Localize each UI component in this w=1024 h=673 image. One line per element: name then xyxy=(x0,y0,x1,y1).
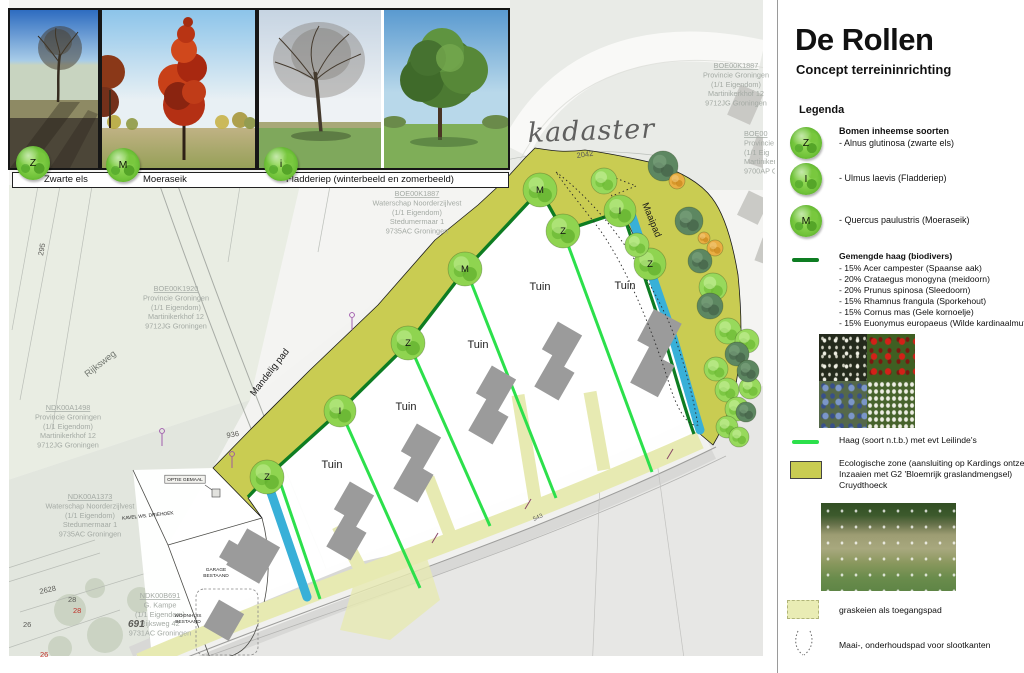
legend-tree-item-alnus: - Alnus glutinosa (zwarte els) xyxy=(839,137,954,149)
sloe-berries-photo-quadrant xyxy=(819,381,867,428)
tree-letter: I xyxy=(339,406,342,417)
parcel-owner-label: Waterschap Noorderzijlvest xyxy=(46,501,135,510)
tree-marker xyxy=(591,168,617,194)
tree-marker-m: M xyxy=(523,173,557,207)
tree-marker-i: I xyxy=(324,395,356,427)
tree-icon-letter: Z xyxy=(803,137,809,149)
tree-icon-letter: Z xyxy=(30,157,36,169)
parcel-owner-label: (1/1 Eigendom) xyxy=(392,208,442,217)
caption-moeraseik: Moeraseik xyxy=(143,174,187,185)
parcel-owner-label: NDK00B691 xyxy=(140,591,181,600)
tree-marker-z: Z xyxy=(391,326,425,360)
tree-icon-letter: M xyxy=(802,215,811,227)
tree-marker xyxy=(697,293,723,319)
parcel-owner-label: (1/1 Eigendom) xyxy=(65,511,115,520)
tree-letter: I xyxy=(619,206,622,217)
eco-zone-line: Ecologische zone (aansluiting op Karding… xyxy=(839,458,1024,469)
parcel-owner-label: BOE00K1887 xyxy=(395,189,440,198)
hedge-mix-photo xyxy=(819,334,915,428)
parcel-owner-label: Martinikerkhof xyxy=(744,157,775,166)
mixed-hedge-swatch xyxy=(792,258,819,262)
parcel-owner-label: (1/1 Eig xyxy=(744,148,769,157)
parcel-owner-label: Provincie Groningen xyxy=(703,70,769,79)
tree-icon-m-strip: M xyxy=(106,148,140,182)
parcel-number: 691 xyxy=(128,619,145,630)
parcel-owner-label: 9700AP G xyxy=(744,167,775,176)
legend-tree-icon-i: I xyxy=(790,163,822,195)
parcel-owner-label: BOE00 xyxy=(744,129,768,138)
legend-tree-item-ulmus: - Ulmus laevis (Fladderiep) xyxy=(839,172,947,184)
parcel-owner-label: Provincie Groningen xyxy=(143,293,209,302)
tree-marker xyxy=(625,233,649,257)
photo-fladderiep-winter xyxy=(259,10,381,168)
mixed-hedge-item: - 15% Acer campester (Spaanse aak) xyxy=(839,263,1024,274)
ntb-hedge-swatch xyxy=(792,440,819,444)
tree-icon-letter: M xyxy=(119,159,128,171)
tree-marker xyxy=(729,427,749,447)
tree-marker xyxy=(736,402,756,422)
parcel-owner-label: Martinikerkhof 12 xyxy=(40,431,96,440)
parcel-owner-label: Stedumermaar 1 xyxy=(390,217,444,226)
mixed-hedge-item: - 15% Rhamnus frangula (Sporkehout) xyxy=(839,296,1024,307)
photo-moeraseik xyxy=(100,8,257,170)
tree-marker-m: M xyxy=(448,252,482,286)
caption-zwarte-els: Zwarte els xyxy=(44,174,88,185)
eco-zone-line: Inzaaien met G2 'Bloemrijk graslandmengs… xyxy=(839,469,1024,480)
parcel-owner-label: 9735AC Groningen xyxy=(386,227,448,236)
map-annotation: BESTAAND xyxy=(203,573,229,579)
parcel-owner-label: Martinikerkhof 12 xyxy=(708,89,764,98)
tuin-label: Tuin xyxy=(322,459,343,471)
parcel-number: 28 xyxy=(68,595,76,604)
kadaster-watermark: kadaster xyxy=(527,114,657,149)
tuin-label: Tuin xyxy=(530,281,551,293)
mixed-hedge-item: - 20% Prunus spinosa (Sleedoorn) xyxy=(839,285,1024,296)
legend-panel: De Rollen Concept terreininrichting Lege… xyxy=(777,0,1024,673)
legend-tree-icon-z: Z xyxy=(790,127,822,159)
parcel-owner-label: Stedumermaar 1 xyxy=(63,520,117,529)
parcel-owner-label: Rijksweg 42 xyxy=(140,619,179,628)
moeraseik-autumn-scene xyxy=(102,10,255,168)
tree-letter: Z xyxy=(647,259,653,270)
tree-marker xyxy=(737,360,759,382)
red-berries-photo-quadrant xyxy=(867,334,915,381)
parcel-owner-label: Provincie xyxy=(744,138,774,147)
parcel-owner-label: (1/1 Eigendom) xyxy=(711,80,761,89)
map-annotation: BESTAAND xyxy=(175,619,201,625)
map-annotation: OPTIE GEMAAL xyxy=(167,477,203,483)
mixed-hedge-item: - 20% Crataegus monogyna (meidoorn) xyxy=(839,274,1024,285)
maaipad-dotted-icon xyxy=(791,628,817,658)
parcel-owner-label: G. Kampe xyxy=(144,600,177,609)
map-annotation: GARAGE xyxy=(206,567,227,573)
tuin-label: Tuin xyxy=(396,401,417,413)
zwarte-els-winter-scene xyxy=(10,10,98,168)
tree-marker xyxy=(707,240,723,256)
tree-marker-i: I xyxy=(604,195,636,227)
parcel-number: 28 xyxy=(73,606,81,615)
tree-marker-z: Z xyxy=(250,460,284,494)
parcel-owner-label: Waterschap Noorderzijlvest xyxy=(373,198,462,207)
parcel-owner-label: 9735AC Groningen xyxy=(59,530,121,539)
fladderiep-summer-scene xyxy=(384,10,508,168)
photo-fladderiep-zomer xyxy=(384,10,508,168)
parcel-owner-label: Provincie Groningen xyxy=(35,412,101,421)
page-title: De Rollen xyxy=(795,22,933,58)
tree-icon-z-strip: Z xyxy=(16,146,50,180)
parcel-owner-label: Martinikerkhof 12 xyxy=(148,312,204,321)
legend-tree-item-quercus: - Quercus paulustris (Moeraseik) xyxy=(839,214,970,226)
caption-fladderiep: Fladderiep (winterbeeld en zomerbeeld) xyxy=(286,174,454,185)
map-annotation: WOONHUIS xyxy=(175,613,202,619)
legend-heading: Legenda xyxy=(799,104,844,116)
tree-letter: Z xyxy=(405,338,411,349)
parcel-owner-label: 9712JG Groningen xyxy=(145,322,207,331)
tuin-label: Tuin xyxy=(615,280,636,292)
photo-caption-bar: Zwarte els Moeraseik Fladderiep (winterb… xyxy=(12,172,509,188)
tree-letter: Z xyxy=(264,472,270,483)
parcel-owner-label: BOE00K1920 xyxy=(154,284,199,293)
maaipad-label: Maai-, onderhoudspad voor slootkanten xyxy=(839,640,990,651)
tree-marker xyxy=(675,207,703,235)
tree-marker xyxy=(698,232,710,244)
mixed-hedge-item: - 15% Euonymus europaeus (Wilde kardinaa… xyxy=(839,318,1024,329)
tree-icon-i-strip: i xyxy=(264,147,298,181)
parcel-owner-label: 9712JG Groningen xyxy=(705,99,767,108)
parcel-owner-label: NDK00A1498 xyxy=(46,403,91,412)
fladderiep-winter-scene xyxy=(259,10,381,168)
eco-zone-swatch xyxy=(790,461,822,479)
legend-trees-heading: Bomen inheemse soorten xyxy=(839,125,954,137)
blossom-photo-quadrant xyxy=(819,334,867,381)
tree-letter: M xyxy=(461,264,469,275)
tuin-label: Tuin xyxy=(468,339,489,351)
tree-marker xyxy=(669,173,685,189)
parcel-owner-label: BOE00K1887 xyxy=(714,61,759,70)
white-flowers-photo-quadrant xyxy=(867,381,915,428)
ntb-hedge-label: Haag (soort n.t.b.) met evt Leilinde's xyxy=(839,435,977,446)
photo-fladderiep-pair xyxy=(257,8,510,170)
parcel-number: 26 xyxy=(23,620,31,629)
legend-tree-icon-m: M xyxy=(790,205,822,237)
grassland-photo xyxy=(821,503,956,591)
tree-marker xyxy=(704,357,728,381)
tree-icon-letter: I xyxy=(805,173,808,185)
mixed-hedge-item: - 15% Cornus mas (Gele kornoelje) xyxy=(839,307,1024,318)
graskeien-label: graskeien als toegangspad xyxy=(839,605,942,616)
page-subtitle: Concept terreininrichting xyxy=(796,62,951,77)
parcel-owner-label: (1/1 Eigendom) xyxy=(151,303,201,312)
parcel-owner-label: NDK00A1373 xyxy=(68,492,113,501)
mixed-hedge-heading: Gemengde haag (biodivers) xyxy=(839,251,952,262)
photo-zwarte-els xyxy=(8,8,100,170)
tree-letter: Z xyxy=(560,226,566,237)
graskeien-swatch xyxy=(787,600,819,619)
parcel-number: 26 xyxy=(40,650,48,659)
tree-icon-letter: i xyxy=(280,158,282,170)
concept-plan-sheet: BOE00K1887Provincie Groningen(1/1 Eigend… xyxy=(0,0,1024,673)
parcel-owner-label: 9712JG Groningen xyxy=(37,441,99,450)
tree-marker-z: Z xyxy=(546,214,580,248)
parcel-owner-label: (1/1 Eigendom) xyxy=(43,422,93,431)
eco-zone-line: Cruydthoeck xyxy=(839,480,1024,491)
reference-photos: Zwarte els Moeraseik Fladderiep (winterb… xyxy=(8,8,510,188)
tree-letter: M xyxy=(536,185,544,196)
